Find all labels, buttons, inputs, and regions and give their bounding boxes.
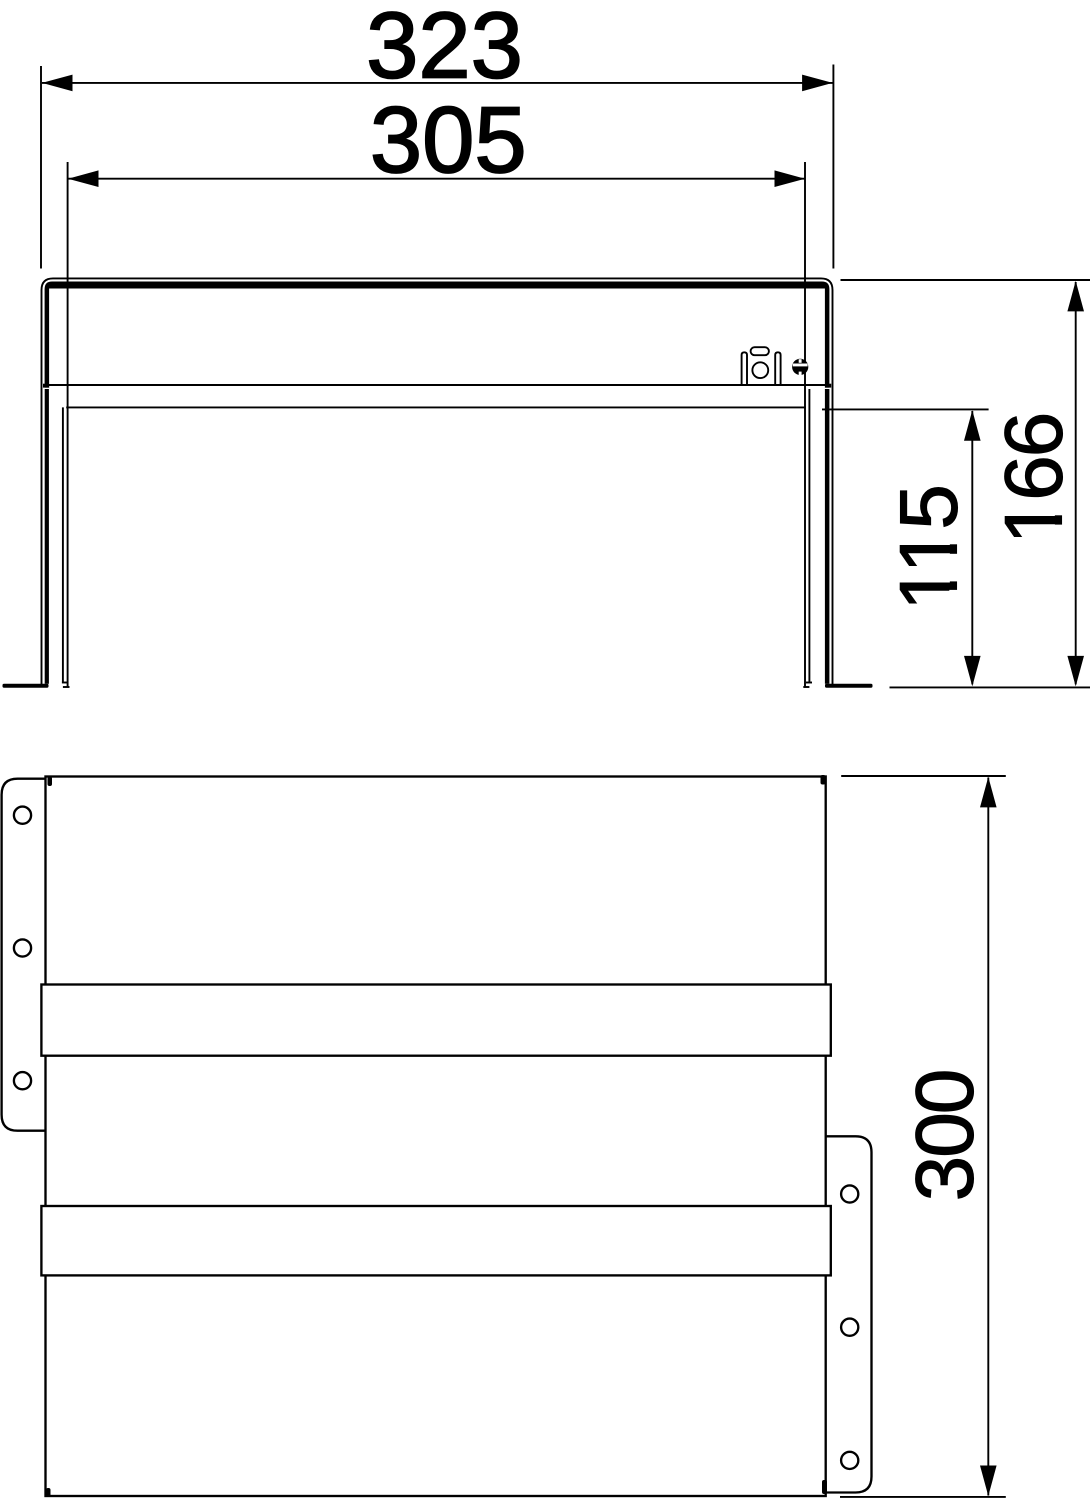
svg-text:305: 305 <box>370 87 527 192</box>
svg-text:300: 300 <box>900 1071 991 1202</box>
svg-text:115: 115 <box>884 486 975 611</box>
svg-text:323: 323 <box>366 0 523 98</box>
svg-text:166: 166 <box>988 414 1079 545</box>
